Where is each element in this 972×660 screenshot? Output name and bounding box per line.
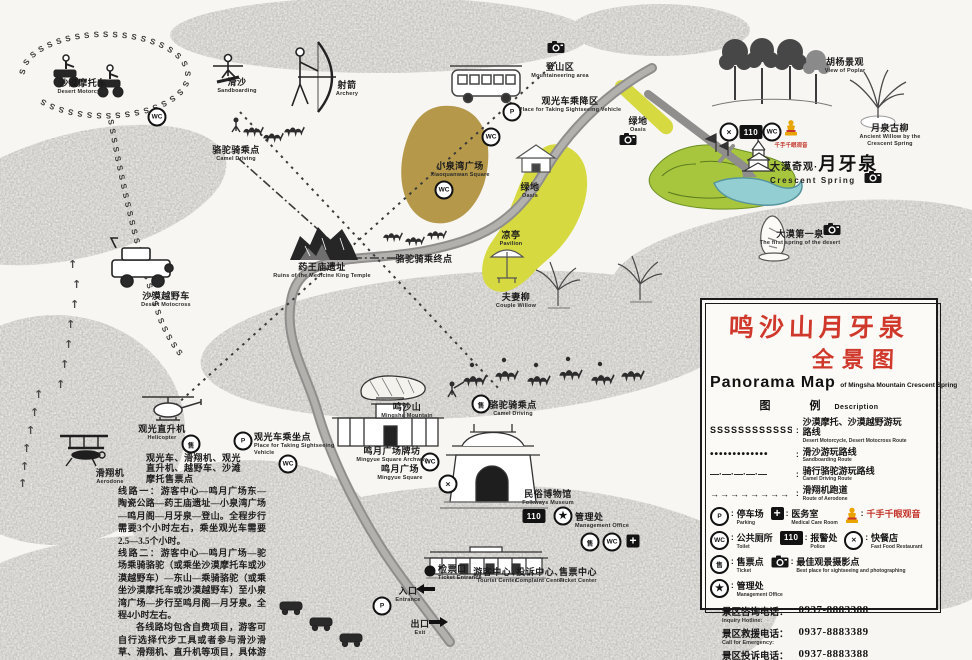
poi-medicine-king-temple: 药王庙遗址Ruins of the Medicine King Temple [273, 262, 371, 280]
poi-medicine-king-temple-cn: 药王庙遗址 [273, 262, 371, 272]
poi-sightseeing-vehicle-boarding-en: Place for Taking Sightseeing Vehicle [254, 443, 346, 456]
icon-legend-cn: 最佳观景摄影点 [796, 555, 905, 568]
wc-icon: WC [482, 128, 501, 147]
poi-pavilion: 凉亭Pavilion [500, 230, 523, 248]
poi-management-office-en: Management Office [575, 523, 629, 530]
poi-sightseeing-vehicle-boarding-cn: 观光车乘坐点 [254, 432, 346, 442]
poi-archery-en: Archery [336, 91, 358, 98]
route-legend: SSSSSSSSSSSSS:沙漠摩托、沙漠越野游玩路线Desert Motorc… [710, 417, 928, 502]
routes-note-lead: 线路二： [118, 548, 161, 558]
food-icon: ✕ [439, 475, 458, 494]
poi-camel-terminal: 骆驼骑乘终点 [395, 254, 452, 264]
poi-oasis-strip-cn: 绿地 [628, 116, 647, 126]
panel-title-en: Panorama Map of Mingsha Mountain Crescen… [710, 374, 928, 392]
crescent-name: 月牙泉 [818, 150, 878, 176]
p-icon: P [234, 432, 253, 451]
poi-first-spring-en: The first spring of the desert [760, 240, 841, 247]
p-icon: P [503, 103, 522, 122]
poi-xiaoquanwan-square-en: Xiaoquanwan Square [430, 172, 489, 179]
route-legend-row-dashdot: —·—·—·—·—:骑行骆驼游玩路线Camel Driving Route [710, 466, 928, 482]
icon-legend-cn: 快餐店 [871, 531, 922, 544]
routes-note-paragraph-1: 线路二：游客中心—鸣月广场—驼场乘骑骆驼（或乘坐沙漠摩托车或沙漠越野车）—东山—… [118, 547, 266, 621]
poi-mountaineering-area-cn: 登山区 [531, 62, 589, 72]
poi-ticket-center: 售票中心Ticket Center [559, 567, 597, 585]
poi-complaint-center-en: Complaint Center [515, 578, 564, 585]
poi-desert-motocross-cn: 沙漠越野车 [141, 291, 191, 301]
med-icon: + [771, 507, 784, 520]
ticket-icon: 售 [581, 533, 600, 552]
icon-legend-cn: 公共厕所 [737, 531, 773, 544]
poi-oasis-strip: 绿地Oasis [628, 116, 647, 134]
routes-note: 线路一：游客中心—鸣月广场东—陶瓷公路—药王庙遗址—小泉湾广场—鸣月阁—月牙泉—… [118, 485, 266, 660]
icon-legend-row: P:停车场Parking+:医务室Medical Care Room:千手千眼观… [710, 507, 928, 526]
hotline-label: 景区救援电话：Call for Emergency: [722, 626, 789, 646]
icon-legend-text-star: 管理处Management Office [737, 579, 783, 598]
poi-exit-cn: 出口 [410, 619, 429, 629]
poi-xiaoquanwan-square: 小泉湾广场Xiaoquanwan Square [430, 161, 489, 179]
poi-pavilion-cn: 凉亭 [500, 230, 523, 240]
poi-sandboarding: 滑沙Sandboarding [217, 77, 256, 95]
icon-legend-cn: 停车场 [737, 507, 764, 520]
camera-icon [619, 133, 637, 146]
poi-camel-driving-north-cn: 骆驼骑乘点 [212, 145, 260, 155]
camera-icon [771, 555, 789, 568]
poi-camel-driving-south-cn: 骆驼骑乘点 [489, 400, 537, 410]
poi-ticket-center-cn: 售票中心 [559, 567, 597, 577]
police-icon: 110 [780, 531, 803, 545]
poi-desert-motorcycle: 沙漠摩托车Desert Motorcycle [57, 78, 108, 96]
icon-legend-text-camera: 最佳观景摄影点Best place for sightseeing and ph… [796, 555, 905, 574]
icon-legend-text-stamp: 千手千眼观音 [866, 507, 920, 520]
crescent-prefix: 大漠奇观· [770, 158, 818, 173]
poi-mingsha-mountain: 鸣沙山Mingsha Mountain [381, 402, 432, 420]
poi-exit-en: Exit [410, 630, 429, 637]
poi-couple-willow: 夫妻柳Couple Willow [496, 292, 536, 310]
route-legend-symbol-s: SSSSSSSSSSSSS [710, 425, 792, 435]
poi-mingyue-archway: 鸣月广场牌坊Mingyue Square Archway [356, 446, 427, 464]
poi-desert-motocross-en: Desert Motocross [141, 302, 191, 309]
poi-helicopter-en: Helicopter [138, 435, 186, 442]
ticket-icon: 售 [182, 435, 201, 454]
poi-couple-willow-cn: 夫妻柳 [496, 292, 536, 302]
icon-legend-cn: 千手千眼观音 [866, 507, 920, 520]
wc-icon: WC [435, 181, 454, 200]
poi-mountaineering-area-en: Mountaineering area [531, 73, 589, 80]
hotline-cn: 景区投诉电话： [722, 648, 789, 660]
colon: : [796, 470, 799, 479]
poi-ticket-entrance: 检票口Ticket Entrance [438, 564, 482, 582]
wc-icon: WC [763, 123, 782, 142]
poi-mingyue-square-en: Mingyue Square [377, 475, 422, 482]
legend-panel: 鸣沙山月牙泉 全景图 Panorama Map of Mingsha Mount… [700, 298, 938, 610]
legend-header-en: Description [834, 404, 878, 411]
icon-legend-en: Management Office [737, 592, 783, 598]
icon-legend-text-wc: 公共厕所Toilet [737, 531, 773, 550]
poi-mingyue-square: 鸣月广场Mingyue Square [377, 464, 422, 482]
icon-legend-item-p: P:停车场Parking [710, 507, 764, 526]
hotline-cn: 景区咨询电话： [722, 604, 789, 618]
hotline-number: 0937-8883388 [799, 648, 869, 660]
route-legend-text-dots: 滑沙游玩路线Sandboarding Route [803, 447, 907, 463]
crescent-spring-label: 大漠奇观· 月牙泉 Crescent Spring [770, 150, 878, 185]
star-icon: ★ [710, 579, 729, 598]
hotlines: 景区咨询电话：Inquiry Hotline:0937-8883388景区救援电… [710, 604, 928, 660]
camera-icon [823, 223, 841, 236]
colon: : [796, 489, 799, 498]
colon: : [731, 533, 734, 542]
hotline-row-2: 景区投诉电话：Complaints Hotline:0937-8883388 [710, 648, 928, 660]
route-legend-symbol-dots: ••••••••••••• [710, 449, 792, 460]
med-icon: + [627, 535, 640, 548]
wc-icon: WC [421, 453, 440, 472]
icon-legend-item-food: ✕:快餐店Fast Food Restaurant [844, 531, 922, 550]
routes-note-lead: 线路一： [118, 486, 161, 496]
panorama-map-stage: SSSSSSSSSSSSSSSSSSSSSSSSSSSSSSSSSSSSSS S… [0, 0, 972, 660]
routes-note-paragraph-0: 线路一：游客中心—鸣月广场东—陶瓷公路—药王庙遗址—小泉湾广场—鸣月阁—月牙泉—… [118, 485, 266, 547]
star-icon: ★ [554, 507, 573, 526]
arrow-left-icon [416, 584, 436, 594]
hotline-number: 0937-8883388 [799, 604, 869, 616]
poi-exit: 出口Exit [410, 619, 429, 637]
poi-mingyue-archway-cn: 鸣月广场牌坊 [356, 446, 427, 456]
poi-aerodone-cn: 滑翔机 [96, 468, 125, 478]
icon-legend-en: Best place for sightseeing and photograp… [796, 568, 905, 574]
icon-legend-row: ★:管理处Management Office [710, 579, 928, 598]
poi-camel-driving-north-en: Camel Driving [212, 156, 260, 163]
poi-oasis-mid-cn: 绿地 [520, 182, 539, 192]
legend-header-cn: 图 例 [759, 400, 834, 412]
poi-camel-driving-south: 骆驼骑乘点Camel Driving [489, 400, 537, 418]
police-icon: 110 [523, 509, 546, 523]
poi-desert-motorcycle-en: Desert Motorcycle [57, 89, 108, 96]
icon-legend-cn: 售票点 [737, 555, 764, 568]
icon-legend-cn: 报警处 [810, 531, 837, 544]
poi-tourist-center-cn: 游客中心、 [473, 567, 521, 577]
poi-desert-motocross: 沙漠越野车Desert Motocross [141, 291, 191, 309]
panel-title-en-main: Panorama Map [710, 374, 836, 391]
poi-camel-driving-south-en: Camel Driving [489, 411, 537, 418]
poi-ticket-center-en: Ticket Center [559, 578, 597, 585]
icon-legend-en: Fast Food Restaurant [871, 544, 922, 550]
colon: : [861, 509, 864, 518]
poi-couple-willow-en: Couple Willow [496, 303, 536, 310]
poi-medicine-king-temple-en: Ruins of the Medicine King Temple [273, 273, 371, 280]
poi-folkways-museum-cn: 民俗博物馆 [522, 489, 574, 499]
icon-legend-cn: 医务室 [791, 507, 837, 520]
poi-helicopter-cn: 观光直升机 [138, 424, 186, 434]
route-legend-en: Camel Driving Route [803, 476, 907, 482]
hotline-number: 0937-8883389 [799, 626, 869, 638]
icon-legend-text-food: 快餐店Fast Food Restaurant [871, 531, 922, 550]
route-legend-cn: 骑行骆驼游玩路线 [803, 466, 907, 476]
poi-vehicle-ticket-office-cn: 观光车、滑翔机、观光直升机、越野车、沙滩摩托售票点 [146, 453, 242, 484]
poi-sandboarding-cn: 滑沙 [217, 77, 256, 87]
police-icon: 110 [740, 125, 763, 139]
icon-legend-text-ticket: 售票点Ticket [737, 555, 764, 574]
food-icon: ✕ [844, 531, 863, 550]
panel-title-cn-1: 鸣沙山月牙泉 [709, 308, 928, 344]
food-icon: ✕ [720, 123, 739, 142]
poi-sightseeing-vehicle-stop: 观光车乘降区Place for Taking Sightseeing Vehic… [519, 96, 621, 114]
route-legend-cn: 滑翔机跑道 [803, 485, 907, 495]
route-legend-cn: 沙漠摩托、沙漠越野游玩路线 [803, 417, 907, 438]
routes-note-paragraph-2: 各线路均包含自费项目，游客可自行选择代步工具或者参与滑沙滑草、滑翔机、直升机等项… [118, 621, 266, 660]
route-legend-cn: 滑沙游玩路线 [803, 447, 907, 457]
poi-pavilion-en: Pavilion [500, 241, 523, 248]
poi-helicopter: 观光直升机Helicopter [138, 424, 186, 442]
icon-legend-text-police: 报警处Police [810, 531, 837, 550]
route-legend-en: Sandboarding Route [803, 457, 907, 463]
poi-seal-caption-cn: 千手千眼观音 [774, 143, 807, 149]
colon: : [731, 557, 734, 566]
poi-oasis-mid: 绿地Oasis [520, 182, 539, 200]
stamp-icon [845, 507, 859, 524]
poi-oasis-mid-en: Oasis [520, 193, 539, 200]
poi-folkways-museum-en: Folkways Museum [522, 500, 574, 507]
hotline-row-1: 景区救援电话：Call for Emergency:0937-8883389 [710, 626, 928, 646]
icon-legend-row: WC:公共厕所Toilet110:报警处Police✕:快餐店Fast Food… [710, 531, 928, 550]
route-legend-row-dots: •••••••••••••:滑沙游玩路线Sandboarding Route [710, 447, 928, 463]
colon: : [731, 581, 734, 590]
poi-mingyue-square-cn: 鸣月广场 [377, 464, 422, 474]
icon-legend-en: Toilet [737, 544, 773, 550]
stamp-icon [784, 120, 798, 137]
colon: : [791, 557, 794, 566]
hotline-label: 景区投诉电话：Complaints Hotline: [722, 648, 789, 660]
icon-legend: P:停车场Parking+:医务室Medical Care Room:千手千眼观… [710, 507, 928, 598]
poi-ancient-willow-cn: 月泉古柳 [849, 123, 931, 133]
icon-legend-en: Parking [737, 520, 764, 526]
poi-mingsha-mountain-en: Mingsha Mountain [381, 413, 432, 420]
wc-icon: WC [148, 108, 167, 127]
p-icon: P [710, 507, 729, 526]
poi-ancient-willow: 月泉古柳Ancient Willow by the Crescent Sprin… [849, 123, 931, 148]
colon: : [796, 426, 799, 435]
poi-mountaineering-area: 登山区Mountaineering area [531, 62, 589, 80]
camera-icon [547, 41, 565, 54]
legend-header: 图 例Description [710, 396, 928, 414]
ticket-icon: 售 [472, 395, 491, 414]
poi-ticket-entrance-cn: 检票口 [438, 564, 482, 574]
icon-legend-item-camera: :最佳观景摄影点Best place for sightseeing and p… [771, 555, 906, 574]
hotline-cn: 景区救援电话： [722, 626, 789, 640]
icon-legend-cn: 管理处 [737, 579, 783, 592]
colon: : [796, 450, 799, 459]
poi-vehicle-ticket-office: 观光车、滑翔机、观光直升机、越野车、沙滩摩托售票点 [146, 453, 242, 484]
colon: : [865, 533, 868, 542]
colon: : [805, 533, 808, 542]
ticket-icon: 售 [710, 555, 729, 574]
poi-mingyue-archway-en: Mingyue Square Archway [356, 457, 427, 464]
icon-legend-en: Medical Care Room [791, 520, 837, 526]
poi-tourist-center: 游客中心、Tourist Center [473, 567, 521, 585]
poi-poplar-view-en: View of Poplar [825, 68, 866, 75]
hotline-label: 景区咨询电话：Inquiry Hotline: [722, 604, 789, 624]
poi-mingsha-mountain-cn: 鸣沙山 [381, 402, 432, 412]
route-legend-row-s: SSSSSSSSSSSSS:沙漠摩托、沙漠越野游玩路线Desert Motorc… [710, 417, 928, 444]
poi-sandboarding-en: Sandboarding [217, 88, 256, 95]
poi-tourist-center-en: Tourist Center [473, 578, 521, 585]
poi-ticket-entrance-en: Ticket Entrance [438, 575, 482, 582]
colon: : [731, 509, 734, 518]
wc-icon: WC [279, 455, 298, 474]
icon-legend-row: 售:售票点Ticket:最佳观景摄影点Best place for sights… [710, 555, 928, 574]
hotline-en: Inquiry Hotline: [722, 618, 789, 624]
wc-icon: WC [603, 533, 622, 552]
icon-legend-item-police: 110:报警处Police [780, 531, 838, 550]
icon-legend-en: Police [810, 544, 837, 550]
route-legend-en: Route of Aerodone [803, 496, 907, 502]
route-legend-row-arrows: →→→→→→→→:滑翔机跑道Route of Aerodone [710, 485, 928, 501]
poi-archery: 射箭Archery [336, 80, 358, 98]
poi-archery-cn: 射箭 [336, 80, 358, 90]
poi-poplar-view: 胡杨景观View of Poplar [825, 57, 866, 75]
poi-entrance-en: Entrance [395, 597, 420, 604]
icon-legend-item-stamp: :千手千眼观音 [845, 507, 921, 524]
poi-sightseeing-vehicle-boarding: 观光车乘坐点Place for Taking Sightseeing Vehic… [254, 432, 346, 457]
poi-management-office-cn: 管理处 [575, 512, 629, 522]
poi-sightseeing-vehicle-stop-cn: 观光车乘降区 [519, 96, 621, 106]
wc-icon: WC [710, 531, 729, 550]
poi-aerodone: 滑翔机Aerodone [96, 468, 125, 486]
poi-ancient-willow-en: Ancient Willow by the Crescent Spring [849, 134, 931, 147]
route-legend-en: Desert Motorcycle, Desert Motocross Rout… [803, 438, 907, 444]
poi-desert-motorcycle-cn: 沙漠摩托车 [57, 78, 108, 88]
hotline-en: Call for Emergency: [722, 640, 789, 646]
icon-legend-text-p: 停车场Parking [737, 507, 764, 526]
panel-title-en-sub: of Mingsha Mountain Crescent Spring [840, 382, 957, 389]
route-legend-text-dashdot: 骑行骆驼游玩路线Camel Driving Route [803, 466, 907, 482]
poi-sightseeing-vehicle-stop-en: Place for Taking Sightseeing Vehicle [519, 107, 621, 114]
p-icon: P [373, 597, 392, 616]
icon-legend-item-med: +:医务室Medical Care Room [771, 507, 838, 526]
icon-legend-item-ticket: 售:售票点Ticket [710, 555, 764, 574]
poi-folkways-museum: 民俗博物馆Folkways Museum [522, 489, 574, 507]
icon-legend-text-med: 医务室Medical Care Room [791, 507, 837, 526]
poi-complaint-center: 投诉中心、Complaint Center [515, 567, 564, 585]
crescent-en: Crescent Spring [770, 176, 878, 185]
poi-xiaoquanwan-square-cn: 小泉湾广场 [430, 161, 489, 171]
icon-legend-en: Ticket [737, 568, 764, 574]
poi-camel-terminal-cn: 骆驼骑乘终点 [395, 254, 452, 264]
panel-title-cn-2: 全景图 [709, 342, 928, 374]
route-legend-symbol-dashdot: —·—·—·—·— [710, 469, 792, 479]
route-legend-symbol-arrows: →→→→→→→→ [710, 489, 792, 499]
icon-legend-item-wc: WC:公共厕所Toilet [710, 531, 773, 550]
dot-icon [425, 566, 436, 577]
poi-management-office: 管理处Management Office [575, 512, 629, 530]
route-legend-text-s: 沙漠摩托、沙漠越野游玩路线Desert Motorcycle, Desert M… [803, 417, 907, 444]
hotline-row-0: 景区咨询电话：Inquiry Hotline:0937-8883388 [710, 604, 928, 624]
poi-complaint-center-cn: 投诉中心、 [515, 567, 564, 577]
route-legend-text-arrows: 滑翔机跑道Route of Aerodone [803, 485, 907, 501]
colon: : [786, 509, 789, 518]
icon-legend-item-star: ★:管理处Management Office [710, 579, 783, 598]
poi-seal-caption: 千手千眼观音 [774, 143, 807, 149]
poi-camel-driving-north: 骆驼骑乘点Camel Driving [212, 145, 260, 163]
poi-poplar-view-cn: 胡杨景观 [825, 57, 866, 67]
arrow-right-icon [428, 617, 448, 627]
